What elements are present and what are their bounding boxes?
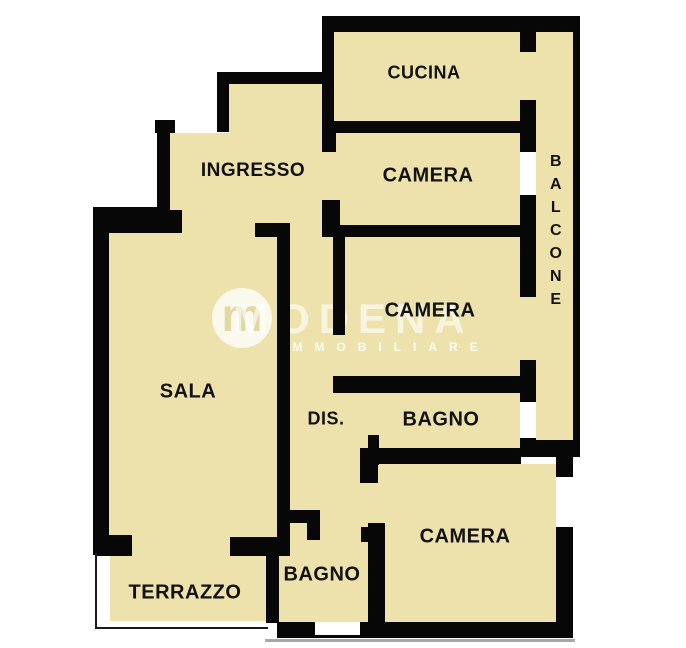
outline-line <box>265 639 575 642</box>
window-marker <box>520 152 536 195</box>
floor-area <box>132 537 230 556</box>
window-marker <box>520 402 536 438</box>
outline-line <box>95 553 97 629</box>
wall-segment <box>277 223 290 556</box>
wall-segment <box>266 547 279 623</box>
wall-segment <box>93 207 109 555</box>
wall-segment <box>333 376 520 393</box>
wall-segment <box>96 535 132 556</box>
wall-segment <box>520 30 536 52</box>
wall-segment <box>322 16 334 133</box>
floor-area <box>322 152 340 200</box>
floor-area <box>520 52 536 100</box>
room-label-letter: E <box>550 288 563 311</box>
room-label-letter: N <box>550 265 563 288</box>
room-label-cucina: CUCINA <box>388 63 461 84</box>
floor-plan-image: m MODENA IMMOBILIARE CUCINACAMERAINGRESS… <box>0 0 686 648</box>
room-label-letter: O <box>550 242 563 265</box>
room-label-bagno-bottom: BAGNO <box>284 564 361 587</box>
wall-segment <box>322 121 520 133</box>
wall-segment <box>520 100 536 152</box>
wall-segment <box>217 72 334 84</box>
room-label-ingresso: INGRESSO <box>201 160 305 182</box>
floor-area <box>368 393 379 435</box>
room-label-letter: C <box>550 219 563 242</box>
room-label-terrazzo: TERRAZZO <box>129 582 242 605</box>
wall-segment <box>361 527 378 542</box>
wall-segment <box>307 510 320 540</box>
room-label-balcone: BALCONE <box>550 150 563 311</box>
floor-area <box>368 483 385 523</box>
room-label-bagno-middle: BAGNO <box>403 409 480 432</box>
room-label-camera-top: CAMERA <box>383 165 474 188</box>
wall-segment <box>520 195 536 297</box>
window-marker <box>315 622 360 635</box>
wall-segment <box>322 133 336 152</box>
wall-segment <box>333 237 345 335</box>
wall-segment <box>322 16 580 32</box>
room-label-camera-middle: CAMERA <box>385 300 476 323</box>
room-label-sala: SALA <box>160 381 216 404</box>
window-marker <box>556 477 573 527</box>
wall-segment <box>360 448 521 464</box>
floor-area <box>182 213 255 237</box>
wall-segment <box>217 72 229 132</box>
room-label-letter: A <box>550 173 563 196</box>
wall-segment <box>93 210 182 233</box>
wall-segment <box>520 360 536 402</box>
outline-line <box>95 627 268 629</box>
room-label-dis: DIS. <box>307 409 344 430</box>
room-label-camera-bottom: CAMERA <box>420 526 511 549</box>
wall-segment <box>520 438 536 457</box>
room-label-letter: B <box>550 150 563 173</box>
floor-area <box>520 297 536 360</box>
wall-segment <box>360 458 378 483</box>
wall-segment <box>573 16 580 457</box>
floor-area <box>229 84 334 133</box>
room-label-letter: L <box>550 196 563 219</box>
wall-segment <box>322 225 520 237</box>
